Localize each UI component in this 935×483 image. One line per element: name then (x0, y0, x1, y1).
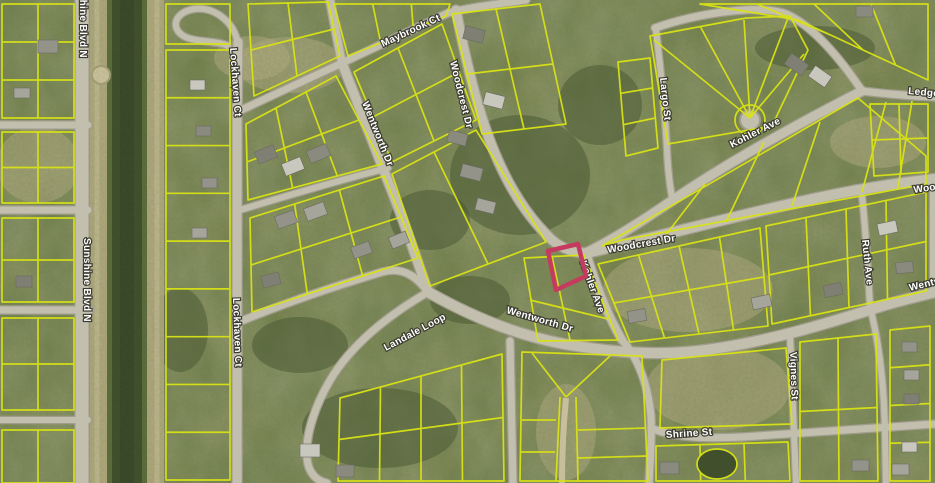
canal (90, 0, 164, 483)
building (202, 178, 217, 188)
building (904, 370, 919, 380)
building (904, 394, 919, 404)
building (190, 80, 205, 90)
building (660, 462, 679, 474)
building (336, 465, 354, 477)
building (896, 261, 914, 273)
building (14, 88, 30, 98)
building (902, 442, 917, 452)
building (300, 444, 320, 457)
building (16, 276, 32, 287)
building (902, 342, 917, 352)
building (856, 6, 873, 17)
street-label: Vignes St (787, 352, 800, 401)
map-canvas[interactable]: Sunshine Blvd NLockhaven CtMaybrook CtWe… (0, 0, 935, 483)
building (892, 464, 909, 475)
road (510, 341, 513, 483)
building (192, 228, 207, 238)
building (196, 126, 211, 136)
street-label: Sunshine Blvd N (77, 0, 88, 58)
street-label: Sunshine Blvd N (81, 238, 92, 322)
satellite-map: Sunshine Blvd NLockhaven CtMaybrook CtWe… (0, 0, 935, 483)
building (38, 40, 58, 53)
building (852, 460, 869, 471)
